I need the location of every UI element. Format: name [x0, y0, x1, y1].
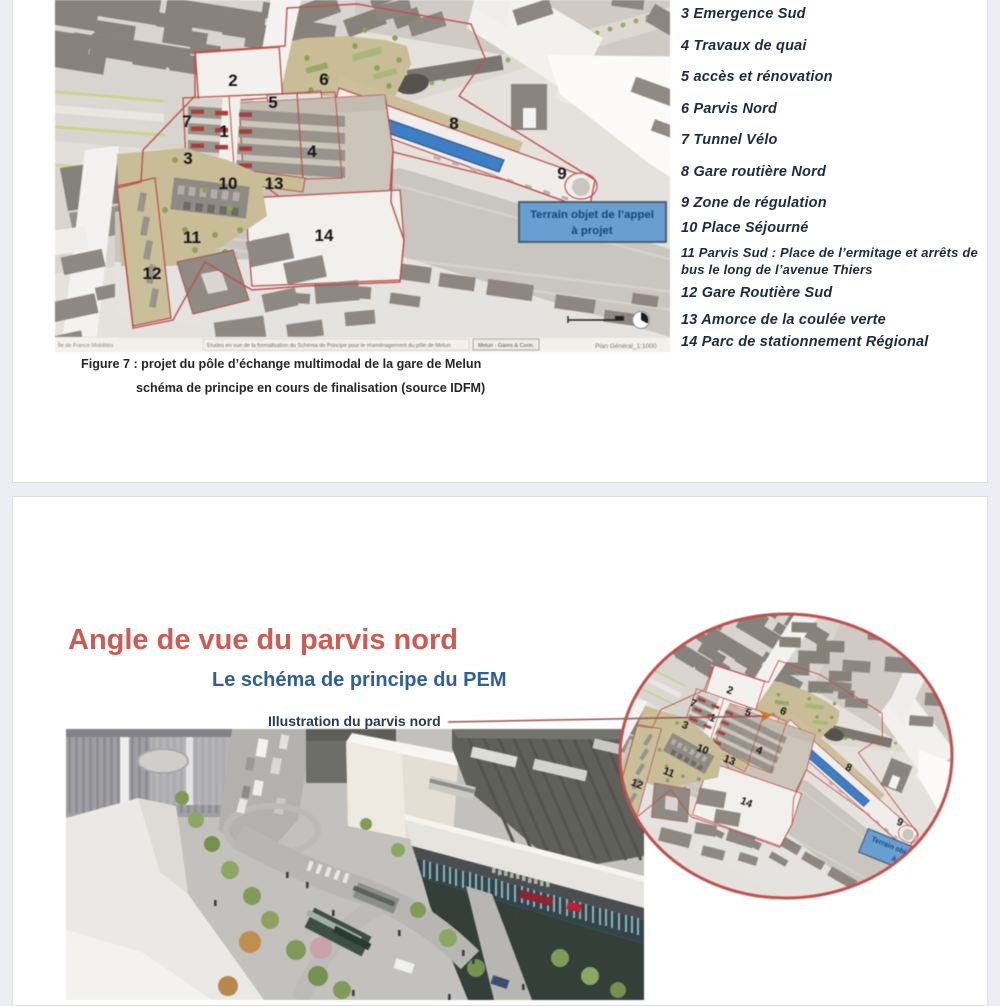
svg-text:Plan Général_1:1000: Plan Général_1:1000 — [595, 343, 657, 350]
svg-text:Etudes en vue de la formalisat: Etudes en vue de la formalisation du Sch… — [207, 343, 450, 349]
svg-text:Melun - Gares & Conn.: Melun - Gares & Conn. — [478, 343, 535, 349]
svg-text:Île de France Mobilités: Île de France Mobilités — [57, 342, 114, 349]
